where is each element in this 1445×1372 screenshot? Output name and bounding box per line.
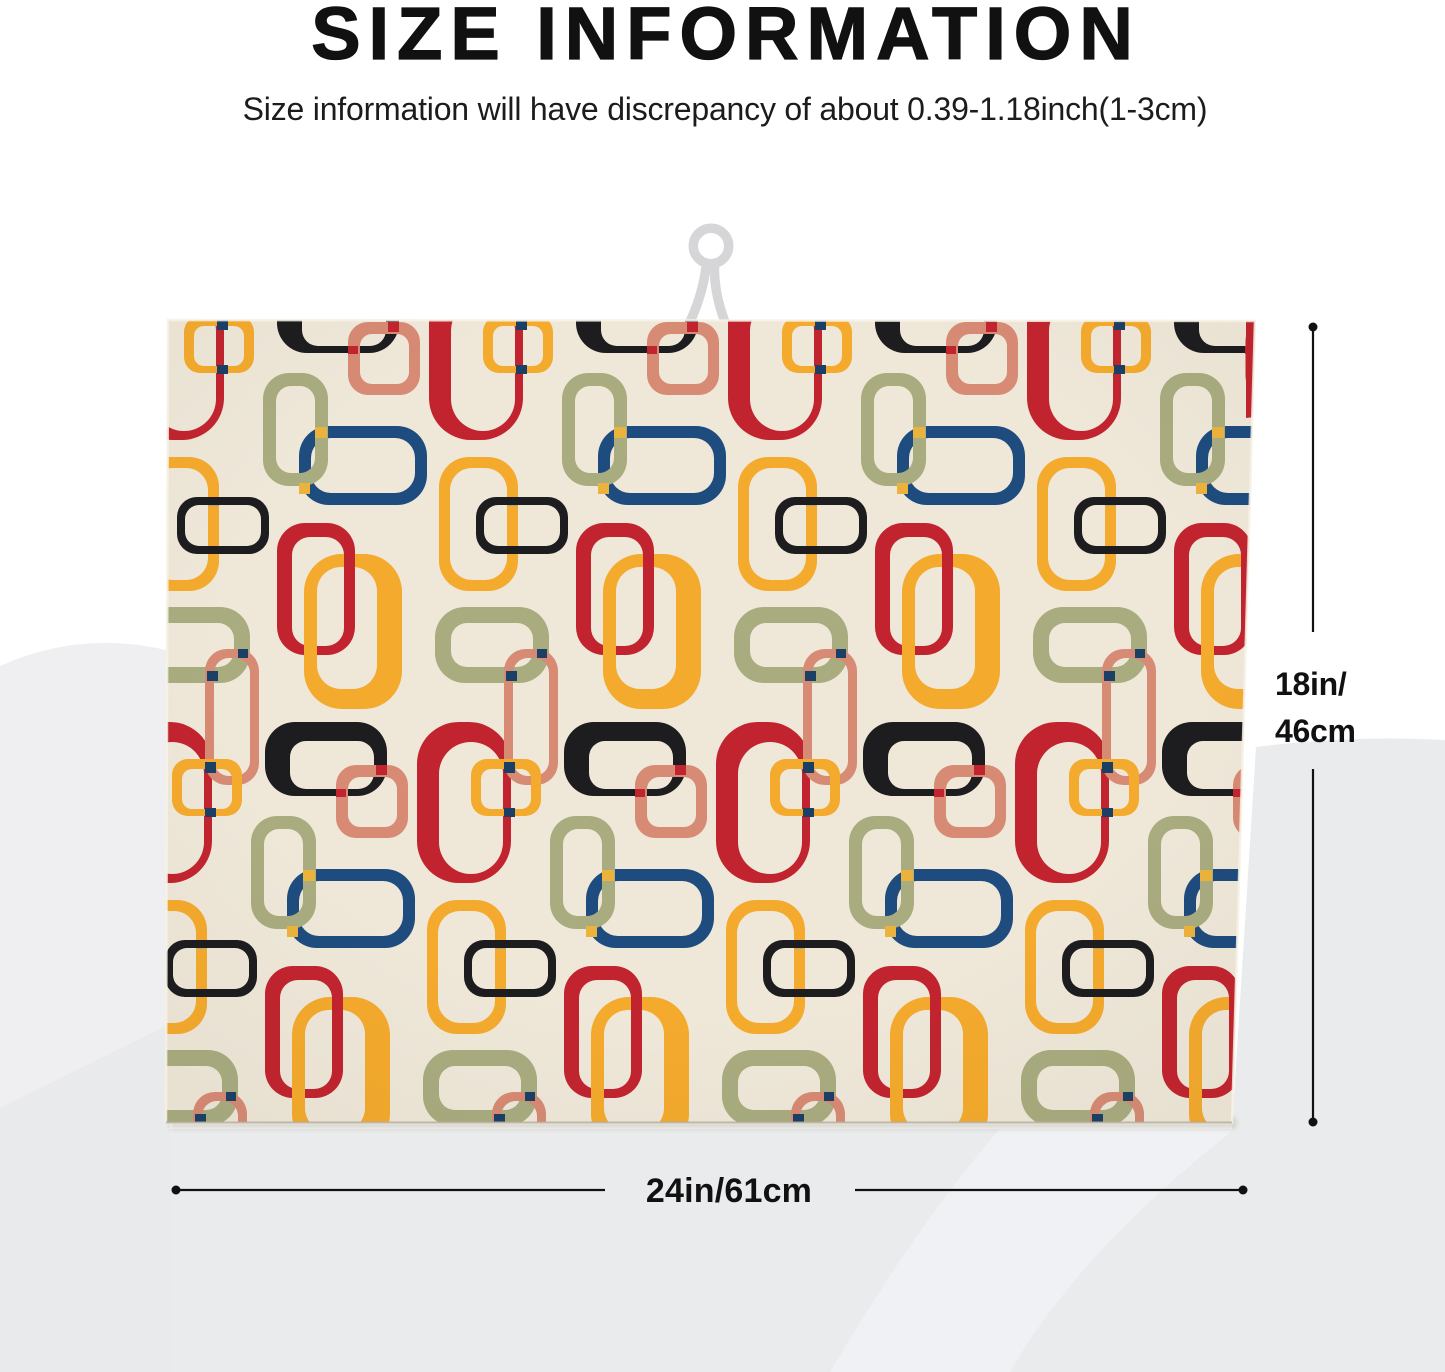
svg-text:24in/61cm: 24in/61cm bbox=[646, 1172, 812, 1210]
svg-text:Size information will have dis: Size information will have discrepancy o… bbox=[243, 91, 1208, 127]
svg-text:18in/: 18in/ bbox=[1275, 666, 1347, 702]
svg-text:SIZE INFORMATION: SIZE INFORMATION bbox=[311, 0, 1141, 75]
svg-text:46cm: 46cm bbox=[1275, 713, 1356, 749]
